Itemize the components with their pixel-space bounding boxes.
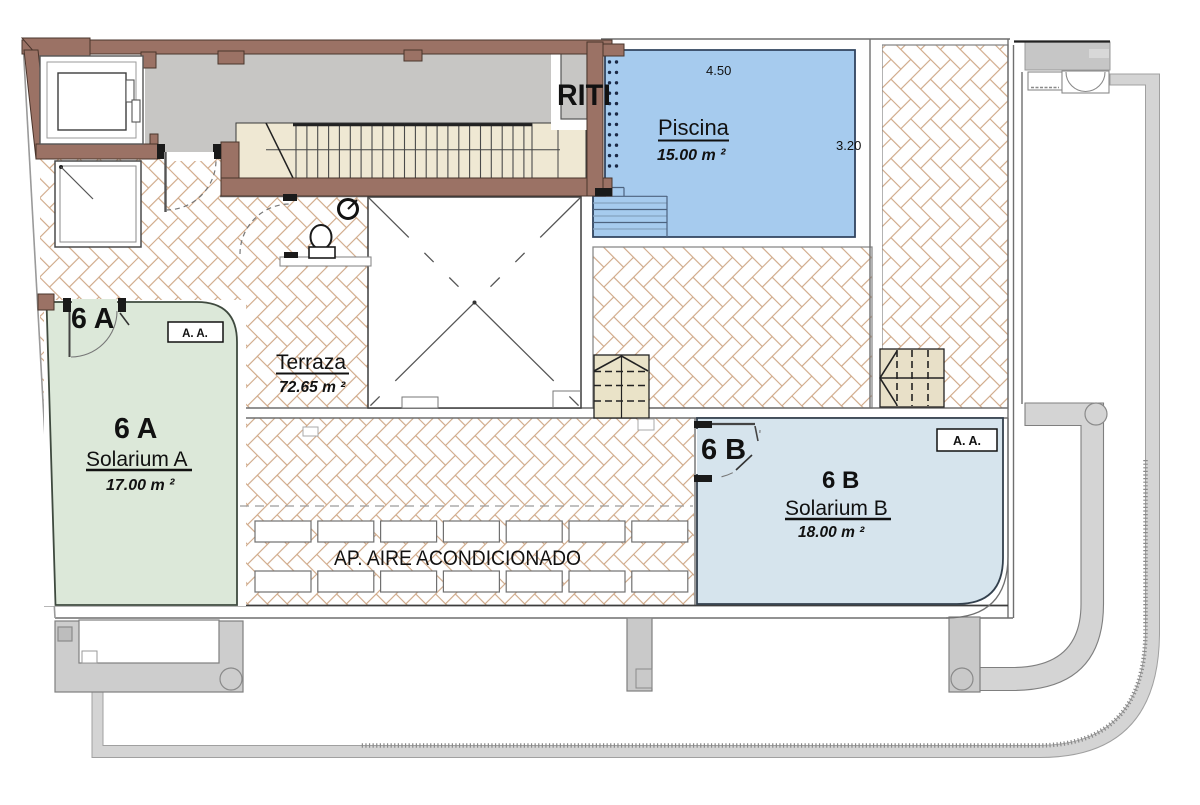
svg-text:6 A: 6 A [114,413,157,445]
svg-text:72.65 m ²: 72.65 m ² [279,379,346,396]
svg-text:6 B: 6 B [822,467,859,494]
svg-text:6 A: 6 A [71,303,114,335]
svg-text:Piscina: Piscina [658,115,730,140]
svg-text:Terraza: Terraza [276,351,346,374]
svg-text:4.50: 4.50 [706,63,731,78]
svg-text:Solarium A: Solarium A [86,448,188,471]
svg-text:15.00 m ²: 15.00 m ² [657,147,726,164]
svg-text:Solarium B: Solarium B [785,497,888,520]
svg-text:6 B: 6 B [701,434,746,466]
svg-text:3.20: 3.20 [836,138,861,153]
svg-text:RITI: RITI [557,79,611,112]
svg-text:A. A.: A. A. [182,328,208,340]
svg-text:18.00 m ²: 18.00 m ² [798,524,865,541]
svg-text:AP. AIRE ACONDICIONADO: AP. AIRE ACONDICIONADO [334,546,581,570]
svg-text:17.00 m ²: 17.00 m ² [106,477,175,494]
svg-text:A. A.: A. A. [953,434,981,448]
